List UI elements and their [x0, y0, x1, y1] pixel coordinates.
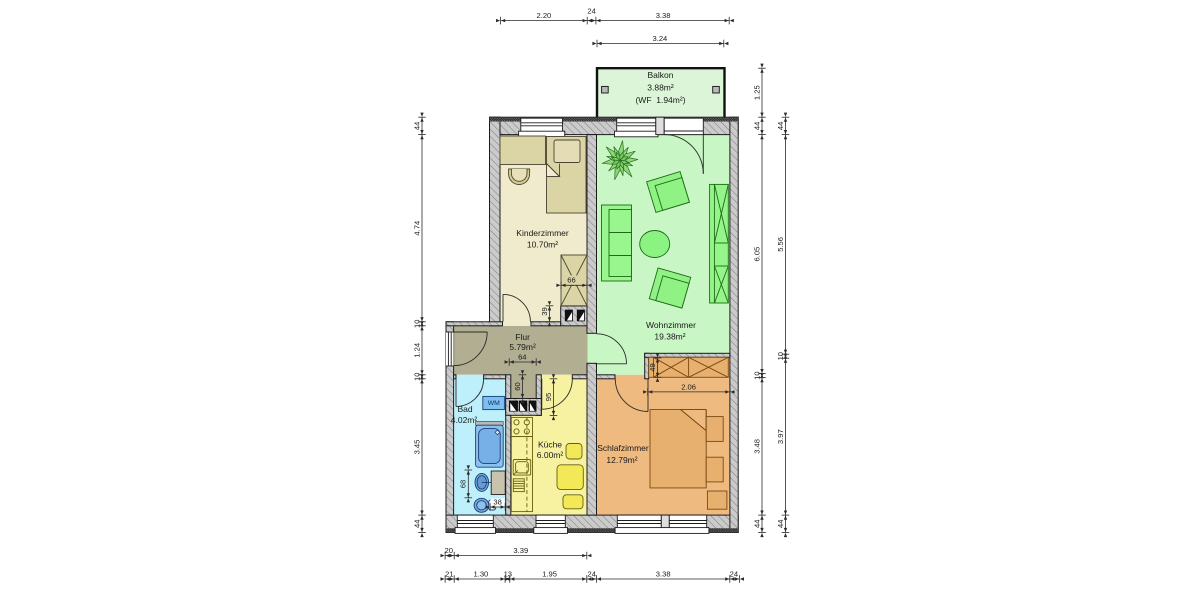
svg-text:3.24: 3.24	[653, 34, 668, 43]
svg-text:4.74: 4.74	[412, 221, 421, 236]
svg-text:44: 44	[752, 122, 761, 130]
svg-text:68: 68	[459, 480, 468, 488]
svg-text:39: 39	[540, 307, 549, 315]
svg-text:20: 20	[444, 546, 452, 555]
svg-text:3.45: 3.45	[412, 440, 421, 455]
svg-text:44: 44	[776, 122, 785, 130]
svg-text:49: 49	[648, 363, 657, 371]
svg-text:3.39: 3.39	[513, 546, 528, 555]
svg-text:Schlafzimmer: Schlafzimmer	[597, 443, 649, 453]
svg-text:38: 38	[493, 497, 501, 506]
svg-text:10: 10	[412, 373, 421, 381]
svg-text:3.38: 3.38	[656, 11, 671, 20]
svg-text:5.56: 5.56	[776, 237, 785, 252]
svg-text:10: 10	[412, 320, 421, 328]
svg-text:44: 44	[412, 122, 421, 130]
svg-text:2.06: 2.06	[681, 382, 696, 391]
svg-text:Wohnzimmer: Wohnzimmer	[646, 320, 696, 330]
svg-text:1.24: 1.24	[412, 343, 421, 358]
svg-text:3.48: 3.48	[752, 439, 761, 454]
svg-text:44: 44	[776, 520, 785, 528]
svg-text:1.30: 1.30	[474, 569, 489, 578]
svg-text:Bad: Bad	[457, 404, 472, 414]
svg-text:13: 13	[504, 569, 512, 578]
svg-text:3.88m²: 3.88m²	[647, 83, 674, 93]
svg-text:95: 95	[544, 393, 553, 401]
svg-text:44: 44	[752, 520, 761, 528]
svg-text:1.25: 1.25	[752, 85, 761, 100]
svg-text:24: 24	[587, 6, 595, 15]
svg-text:19.38m²: 19.38m²	[654, 332, 685, 342]
svg-text:10: 10	[776, 352, 785, 360]
svg-text:Kinderzimmer: Kinderzimmer	[516, 228, 569, 238]
svg-text:10.70m²: 10.70m²	[527, 240, 558, 250]
svg-text:64: 64	[518, 352, 526, 361]
svg-text:44: 44	[412, 520, 421, 528]
svg-text:WM: WM	[488, 400, 500, 407]
svg-text:4.02m²: 4.02m²	[451, 415, 478, 425]
svg-text:6.05: 6.05	[752, 247, 761, 262]
svg-text:5.79m²: 5.79m²	[509, 342, 536, 352]
svg-text:24: 24	[730, 569, 738, 578]
svg-text:3.97: 3.97	[776, 429, 785, 444]
svg-text:21: 21	[445, 569, 453, 578]
svg-text:66: 66	[567, 276, 575, 285]
svg-text:2.20: 2.20	[537, 11, 552, 20]
svg-text:Flur: Flur	[515, 332, 530, 342]
svg-text:1.95: 1.95	[542, 569, 557, 578]
svg-text:60: 60	[513, 382, 522, 390]
svg-text:10: 10	[752, 371, 761, 379]
svg-text:(WF 1.94m²): (WF 1.94m²)	[635, 95, 685, 105]
svg-text:Balkon: Balkon	[648, 70, 674, 80]
svg-text:24: 24	[587, 569, 595, 578]
svg-text:6.00m²: 6.00m²	[537, 450, 564, 460]
svg-text:3.38: 3.38	[656, 569, 671, 578]
svg-text:Küche: Küche	[538, 440, 562, 450]
svg-text:12.79m²: 12.79m²	[606, 455, 637, 465]
